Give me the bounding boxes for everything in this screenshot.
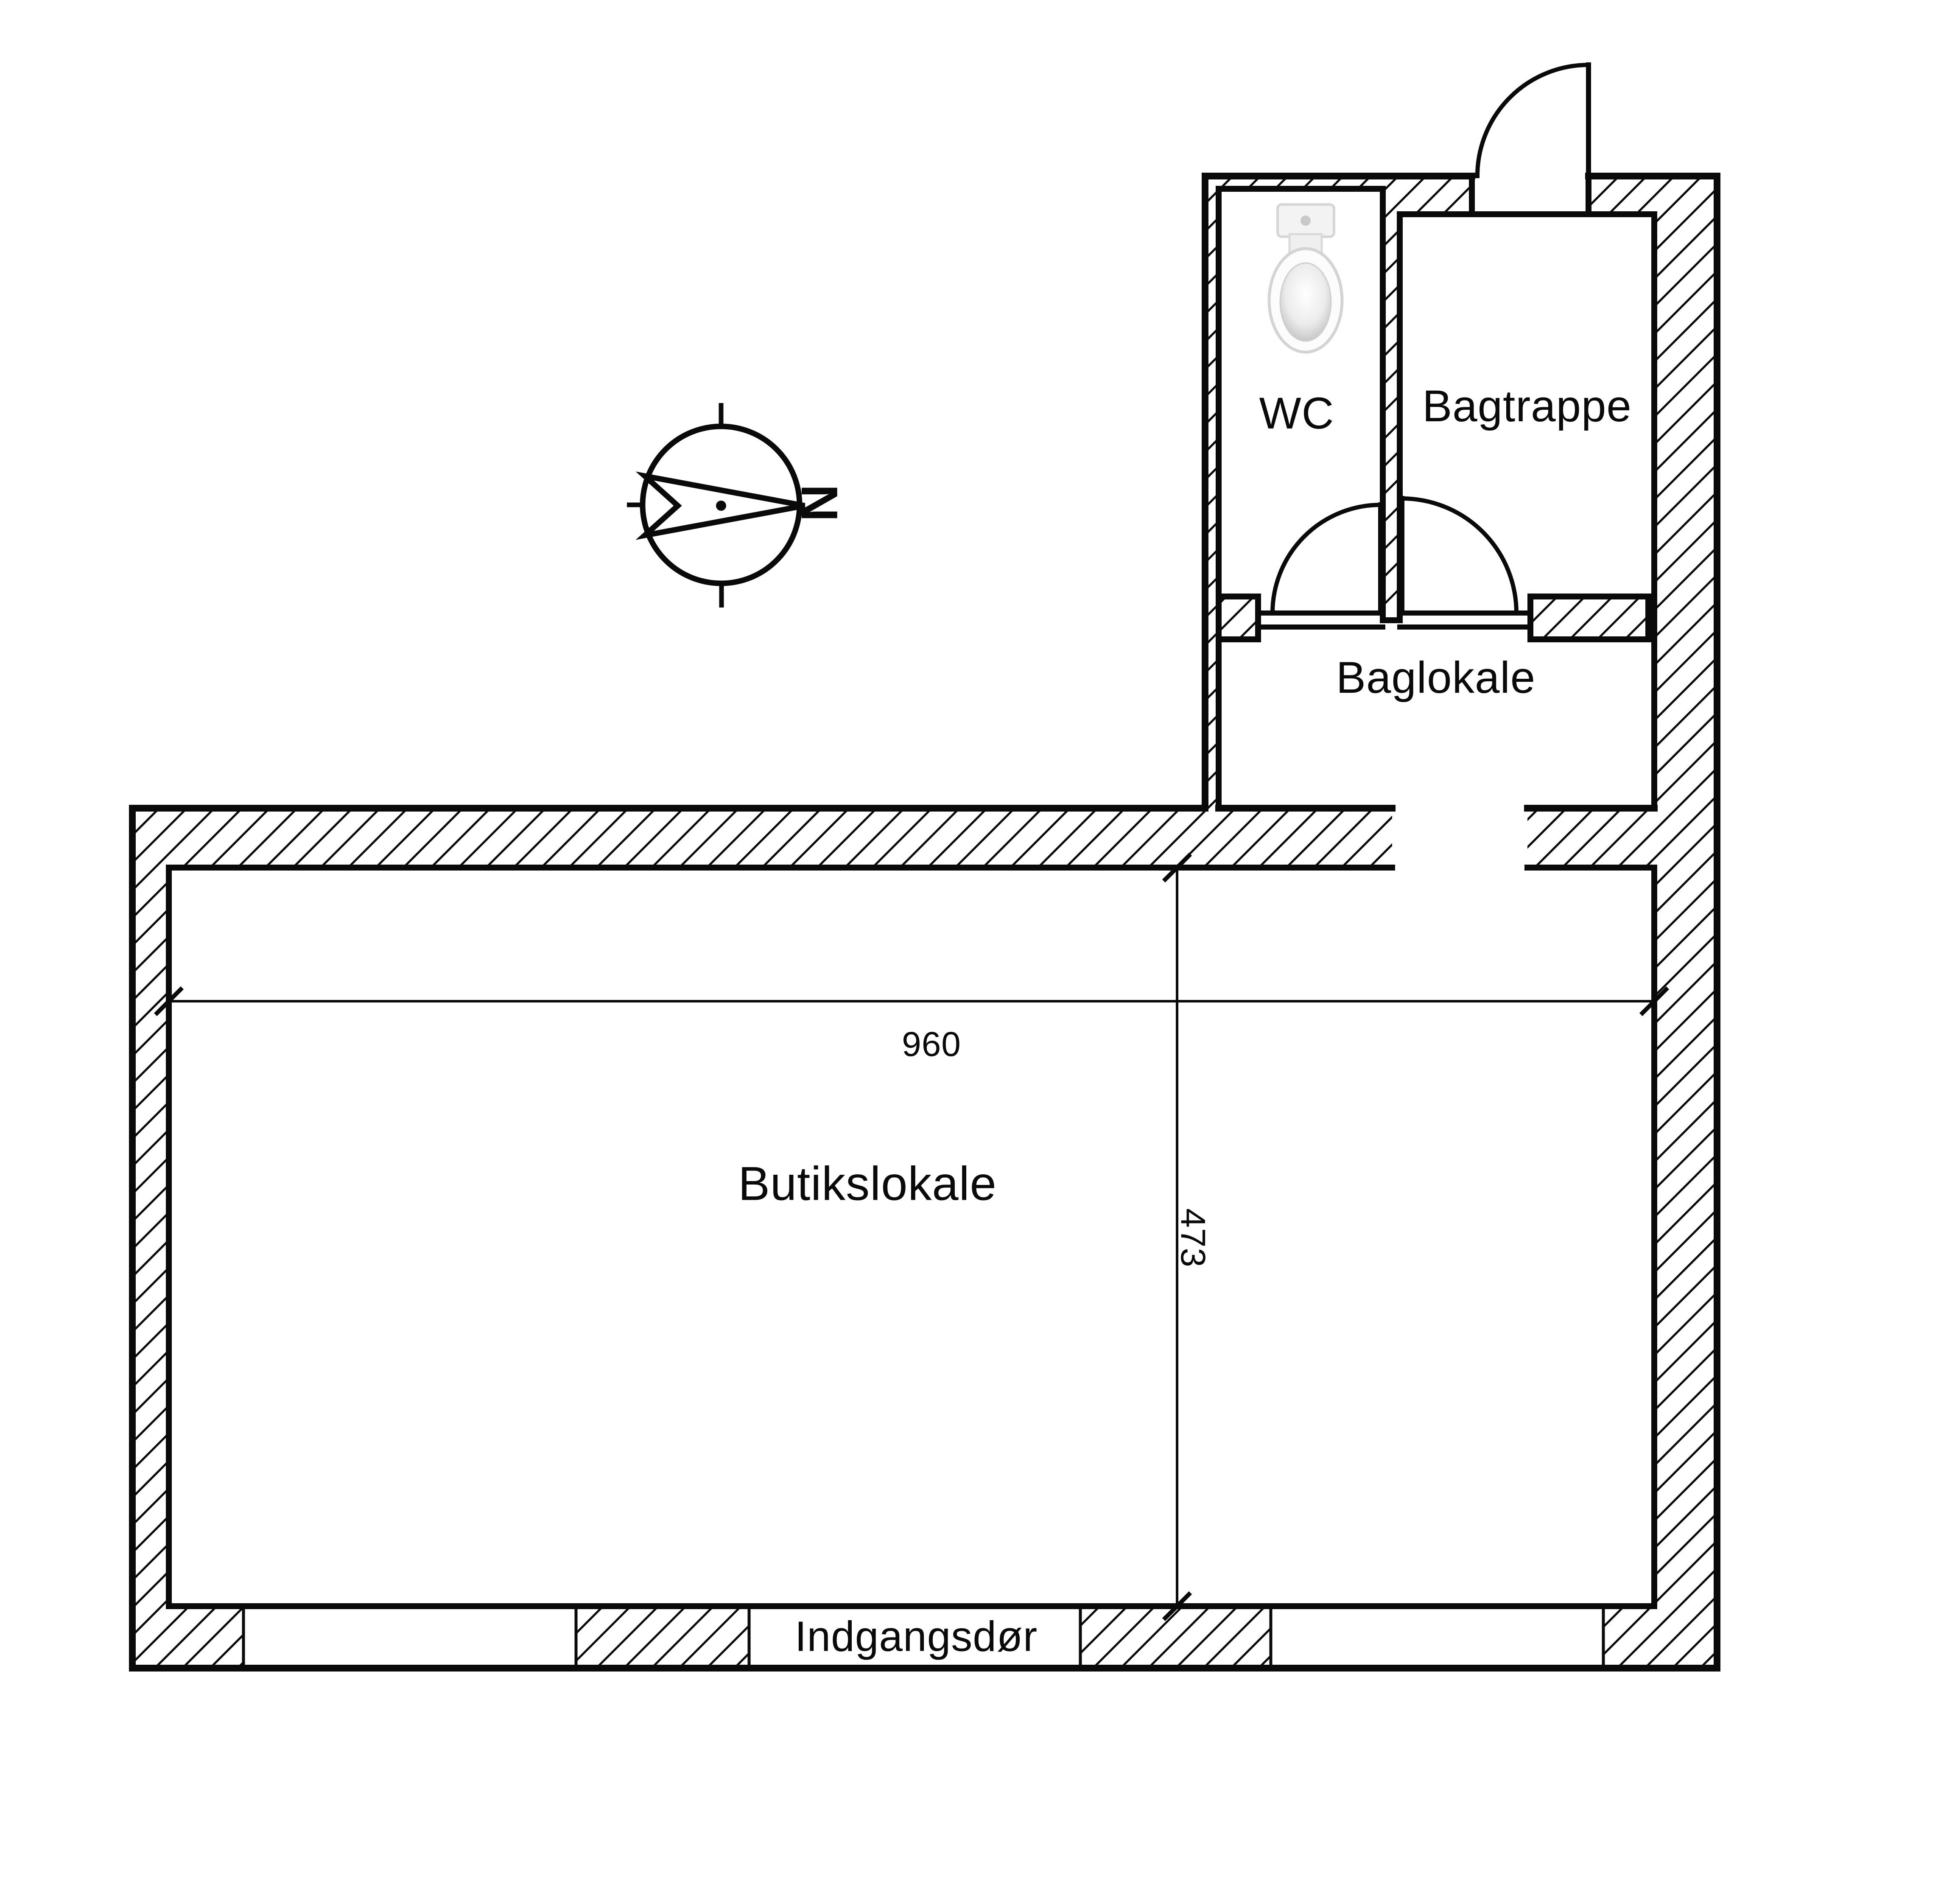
mid-wall-block-right: [1530, 596, 1648, 639]
depth-dimension-value: 473: [1173, 1208, 1213, 1268]
toilet-bowl-inner: [1280, 263, 1331, 341]
width-dimension-value: 960: [902, 1025, 961, 1064]
main-left-wall: [132, 808, 169, 1668]
main-right-wall: [1654, 176, 1717, 1668]
bottom-wall-segment-1: [132, 1606, 243, 1668]
dimension-lines: [157, 856, 1666, 1618]
annex-top-wall-bagtrappe-left: [1400, 176, 1472, 214]
main-top-wall-right: [1527, 808, 1654, 868]
mid-wall-block-left: [1219, 596, 1258, 639]
compass-north-letter: N: [790, 484, 849, 522]
dimension-ticks: [157, 856, 1666, 1618]
back-door-jambs: [1472, 176, 1589, 214]
bagtrappe-room-outline: [1400, 214, 1654, 808]
compass-center-dot: [716, 501, 726, 511]
floor-plan-page: { "title": "Butikslokale floor plan", "c…: [0, 0, 1941, 1904]
toilet-icon: [1269, 204, 1342, 352]
bagtrappe-room-label: Bagtrappe: [1422, 381, 1632, 432]
baglokale-room-label: Baglokale: [1336, 652, 1535, 703]
back-door-swing-icon: [1477, 65, 1589, 176]
wc-door-swing-icon: [1273, 505, 1381, 613]
toilet-flush-button: [1301, 216, 1311, 226]
bagtrappe-door-swing-icon: [1402, 498, 1516, 613]
entrance-door-label: Indgangsdør: [795, 1613, 1038, 1661]
wc-room-label: WC: [1259, 388, 1334, 439]
main-top-wall-left: [132, 808, 1392, 868]
butikslokale-room-label: Butikslokale: [738, 1156, 997, 1211]
annex-top-wall-bagtrappe-right: [1589, 176, 1654, 214]
compass-north-icon: [627, 403, 805, 608]
bottom-wall-segment-2: [576, 1606, 749, 1668]
bottom-wall-segment-4: [1603, 1606, 1717, 1668]
bottom-wall-segment-3: [1080, 1606, 1271, 1668]
